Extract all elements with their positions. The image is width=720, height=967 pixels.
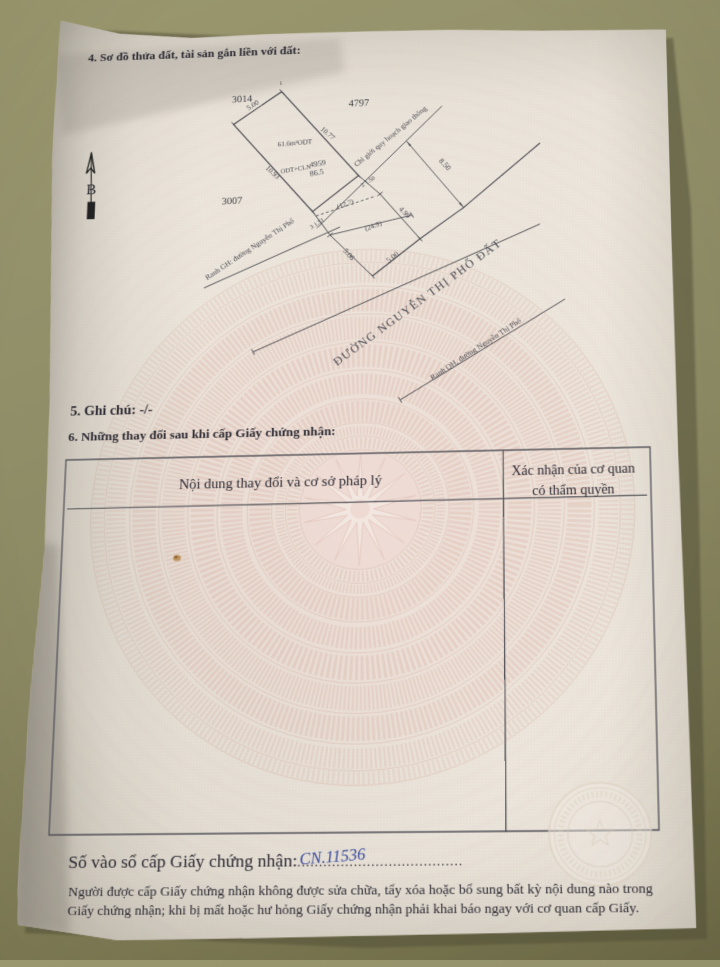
svg-text:3007: 3007 (222, 195, 243, 207)
svg-text:B: B (86, 182, 97, 198)
svg-text:4797: 4797 (349, 98, 370, 110)
svg-text:1: 1 (280, 81, 283, 87)
